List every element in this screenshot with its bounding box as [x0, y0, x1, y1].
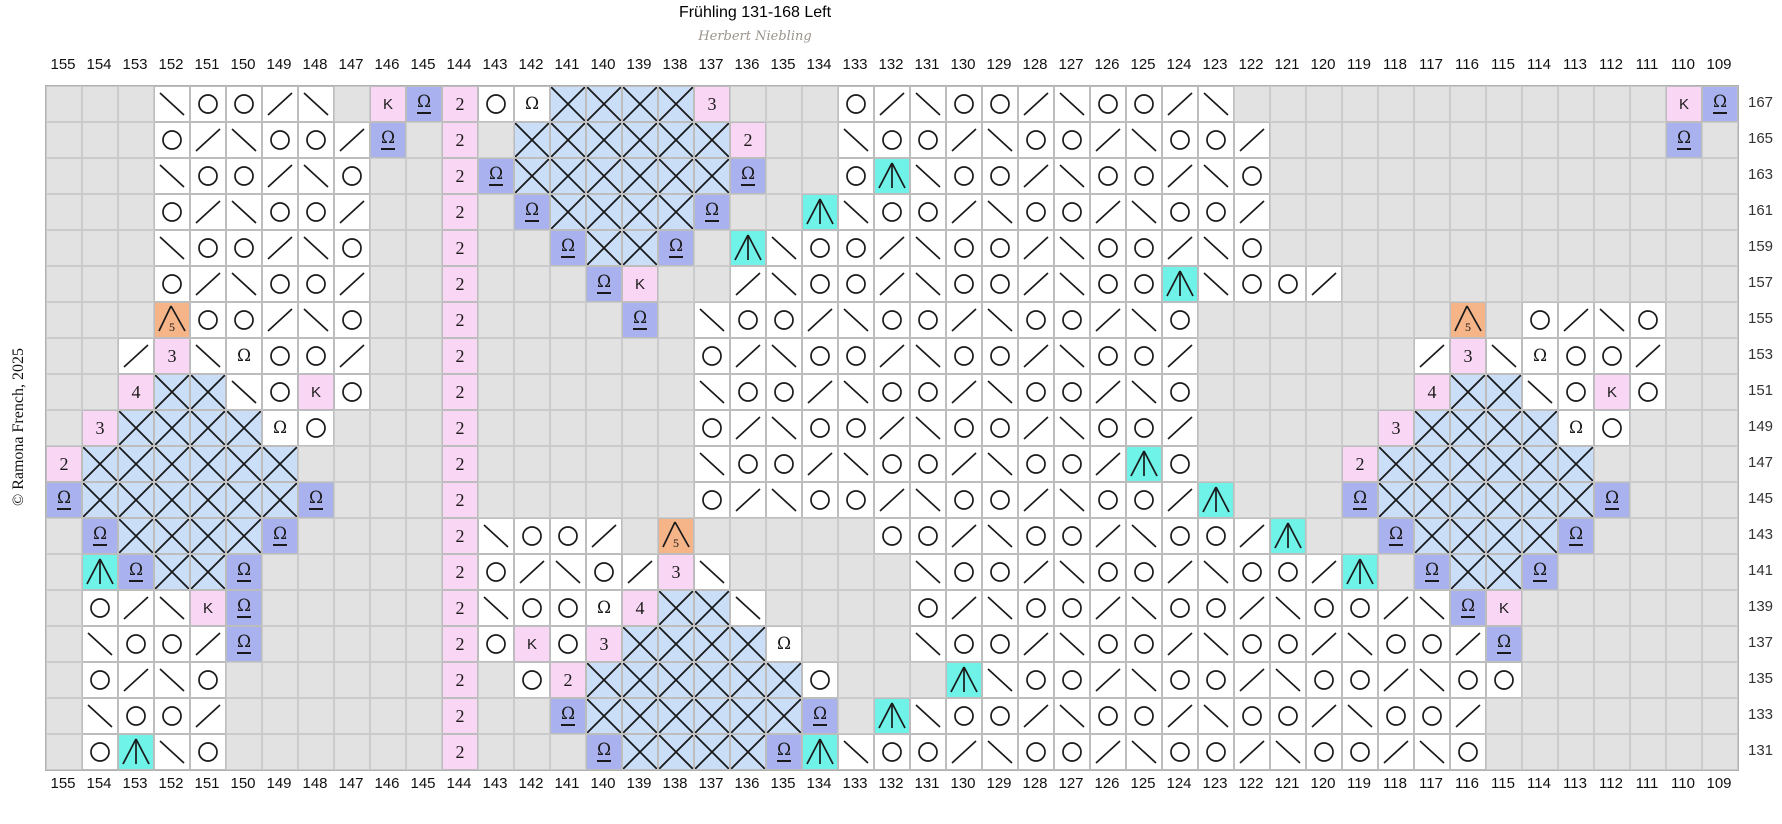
cell-r145-c149	[262, 482, 298, 518]
cell-r151-c148: K	[298, 374, 334, 410]
cell-r141-c136	[730, 554, 766, 590]
crossed-stitch-icon	[1451, 555, 1485, 589]
cell-r135-c112	[1594, 662, 1630, 698]
cell-r143-c149: Ω	[262, 518, 298, 554]
cell-r141-c116	[1450, 554, 1486, 590]
yarn-over-icon	[1091, 267, 1125, 301]
cell-r153-c144: 2	[442, 338, 478, 374]
yarn-over-icon	[155, 699, 189, 733]
right-decrease-icon	[1091, 375, 1125, 409]
cell-r151-c151	[190, 374, 226, 410]
yarn-over-icon	[1415, 627, 1449, 661]
cell-r165-c125	[1126, 122, 1162, 158]
cell-r137-c123	[1198, 626, 1234, 662]
cell-r135-c114	[1522, 662, 1558, 698]
cell-r145-c152	[154, 482, 190, 518]
cell-r153-c111	[1630, 338, 1666, 374]
yarn-over-icon	[1127, 339, 1161, 373]
cell-r147-c144: 2	[442, 446, 478, 482]
cell-r145-c132	[874, 482, 910, 518]
cell-r141-c126	[1090, 554, 1126, 590]
cell-r145-c129	[982, 482, 1018, 518]
column-label-121: 121	[1269, 52, 1305, 78]
twisted-stitch-icon: Ω	[489, 166, 503, 186]
yarn-over-icon	[1163, 447, 1197, 481]
cell-r131-c137	[694, 734, 730, 770]
yarn-over-icon	[731, 375, 765, 409]
cell-r135-c109	[1702, 662, 1738, 698]
cell-r133-c146	[370, 698, 406, 734]
cell-r157-c124	[1162, 266, 1198, 302]
cell-r163-c126	[1090, 158, 1126, 194]
twisted-stitch-icon: Ω	[1569, 526, 1583, 546]
left-decrease-icon	[1055, 555, 1089, 589]
cell-r165-c151	[190, 122, 226, 158]
cell-r139-c129	[982, 590, 1018, 626]
crossed-stitch-icon	[1415, 447, 1449, 481]
cell-r131-c131	[910, 734, 946, 770]
left-decrease-icon	[299, 159, 333, 193]
cell-r147-c111	[1630, 446, 1666, 482]
yarn-over-icon	[1163, 375, 1197, 409]
cell-r167-c146: K	[370, 86, 406, 122]
cell-r167-c124	[1162, 86, 1198, 122]
column-label-130: 130	[945, 52, 981, 78]
cell-r153-c138	[658, 338, 694, 374]
double-decrease-icon	[875, 159, 909, 193]
yarn-over-icon	[947, 555, 981, 589]
twisted-stitch-icon: Ω	[741, 166, 755, 186]
row-label-147: 147	[1745, 445, 1781, 481]
cell-r151-c152	[154, 374, 190, 410]
yarn-over-icon	[695, 339, 729, 373]
cell-r147-c121	[1270, 446, 1306, 482]
cell-r163-c138	[658, 158, 694, 194]
cell-r131-c123	[1198, 734, 1234, 770]
yarn-over-icon	[1307, 735, 1341, 769]
cell-r159-c112	[1594, 230, 1630, 266]
yarn-over-icon	[767, 303, 801, 337]
cell-r159-c132	[874, 230, 910, 266]
yarn-over-icon	[263, 123, 297, 157]
right-decrease-icon	[263, 87, 297, 121]
cell-r141-c130	[946, 554, 982, 590]
cell-r155-c117	[1414, 302, 1450, 338]
column-label-153: 153	[117, 52, 153, 78]
left-decrease-icon	[299, 231, 333, 265]
column-label-119: 119	[1341, 771, 1377, 797]
cell-r131-c126	[1090, 734, 1126, 770]
cell-r143-c151	[190, 518, 226, 554]
cell-r145-c147	[334, 482, 370, 518]
cell-r157-c135	[766, 266, 802, 302]
cell-r133-c128	[1018, 698, 1054, 734]
right-decrease-icon	[335, 195, 369, 229]
cell-r159-c133	[838, 230, 874, 266]
cell-r149-c142	[514, 410, 550, 446]
yarn-over-icon	[1307, 663, 1341, 697]
cell-r135-c146	[370, 662, 406, 698]
cell-r161-c136	[730, 194, 766, 230]
yarn-over-icon	[515, 591, 549, 625]
cell-r163-c117	[1414, 158, 1450, 194]
cell-r165-c136: 2	[730, 122, 766, 158]
left-decrease-icon	[1199, 159, 1233, 193]
right-decrease-icon	[1235, 195, 1269, 229]
left-decrease-icon	[479, 519, 513, 553]
cell-r143-c128	[1018, 518, 1054, 554]
cell-r159-c136	[730, 230, 766, 266]
cell-r143-c127	[1054, 518, 1090, 554]
cell-r161-c145	[406, 194, 442, 230]
cell-r157-c112	[1594, 266, 1630, 302]
cell-r149-c110	[1666, 410, 1702, 446]
yarn-over-icon	[1595, 411, 1629, 445]
column-label-147: 147	[333, 52, 369, 78]
k-stitch-label: K	[203, 601, 213, 616]
cell-r147-c153	[118, 446, 154, 482]
right-decrease-icon	[947, 123, 981, 157]
cell-r139-c120	[1306, 590, 1342, 626]
cell-r163-c131	[910, 158, 946, 194]
crossed-stitch-icon	[659, 627, 693, 661]
cell-r137-c152	[154, 626, 190, 662]
cell-r145-c155: Ω	[46, 482, 82, 518]
cell-r165-c113	[1558, 122, 1594, 158]
k-stitch-label: K	[311, 385, 321, 400]
cell-r139-c154	[82, 590, 118, 626]
cell-r153-c121	[1270, 338, 1306, 374]
left-decrease-icon	[551, 555, 585, 589]
cell-r131-c121	[1270, 734, 1306, 770]
cell-r137-c132	[874, 626, 910, 662]
yarn-over-icon	[947, 231, 981, 265]
left-decrease-icon	[1055, 339, 1089, 373]
cell-r143-c109	[1702, 518, 1738, 554]
crossed-stitch-icon	[227, 483, 261, 517]
cell-r167-c133	[838, 86, 874, 122]
cell-r139-c140: Ω	[586, 590, 622, 626]
cell-r155-c130	[946, 302, 982, 338]
cell-r139-c128	[1018, 590, 1054, 626]
left-decrease-icon	[299, 87, 333, 121]
yarn-over-icon	[299, 267, 333, 301]
cell-r149-c112	[1594, 410, 1630, 446]
twisted-stitch-icon: Ω	[417, 94, 431, 114]
crossed-stitch-icon	[1523, 447, 1557, 481]
twisted-stitch-icon: Ω	[597, 600, 611, 617]
cell-r139-c141	[550, 590, 586, 626]
yarn-over-icon	[803, 483, 837, 517]
column-label-138: 138	[657, 771, 693, 797]
cell-r141-c115	[1486, 554, 1522, 590]
row-label-131: 131	[1745, 733, 1781, 769]
crossed-stitch-icon	[1487, 375, 1521, 409]
cell-r151-c123	[1198, 374, 1234, 410]
cell-r141-c138: 3	[658, 554, 694, 590]
cell-r137-c138	[658, 626, 694, 662]
cell-r155-c126	[1090, 302, 1126, 338]
cell-r131-c145	[406, 734, 442, 770]
yarn-over-icon	[731, 303, 765, 337]
left-decrease-icon	[839, 195, 873, 229]
cell-r167-c120	[1306, 86, 1342, 122]
right-decrease-icon	[1163, 231, 1197, 265]
cell-r155-c138	[658, 302, 694, 338]
left-decrease-icon	[1127, 195, 1161, 229]
cell-r133-c154	[82, 698, 118, 734]
cell-r157-c129	[982, 266, 1018, 302]
crossed-stitch-icon	[1559, 447, 1593, 481]
yarn-over-icon	[1019, 519, 1053, 553]
left-decrease-icon	[155, 591, 189, 625]
cell-r131-c150	[226, 734, 262, 770]
crossed-stitch-icon	[551, 87, 585, 121]
cell-r161-c152	[154, 194, 190, 230]
cell-r139-c147	[334, 590, 370, 626]
row-label-167: 167	[1745, 85, 1781, 121]
cell-r149-c118: 3	[1378, 410, 1414, 446]
yarn-over-icon	[1199, 591, 1233, 625]
cell-r145-c153	[118, 482, 154, 518]
cell-r135-c131	[910, 662, 946, 698]
left-decrease-icon	[911, 411, 945, 445]
cell-r137-c129	[982, 626, 1018, 662]
cell-r135-c125	[1126, 662, 1162, 698]
cell-r141-c119	[1342, 554, 1378, 590]
yarn-over-icon	[1019, 663, 1053, 697]
column-label-114: 114	[1521, 771, 1557, 797]
cell-r163-c134	[802, 158, 838, 194]
double-decrease-icon	[119, 735, 153, 769]
yarn-over-icon	[119, 627, 153, 661]
yarn-over-icon	[515, 519, 549, 553]
cell-r165-c148	[298, 122, 334, 158]
cell-r163-c127	[1054, 158, 1090, 194]
crossed-stitch-icon	[1379, 483, 1413, 517]
cell-r157-c115	[1486, 266, 1522, 302]
cell-r137-c125	[1126, 626, 1162, 662]
cell-r137-c154	[82, 626, 118, 662]
cell-r147-c146	[370, 446, 406, 482]
crossed-stitch-icon	[155, 411, 189, 445]
cell-r141-c113	[1558, 554, 1594, 590]
cell-r145-c143	[478, 482, 514, 518]
cell-r159-c154	[82, 230, 118, 266]
cell-r131-c154	[82, 734, 118, 770]
cell-r159-c141: Ω	[550, 230, 586, 266]
column-label-116: 116	[1449, 52, 1485, 78]
crossed-stitch-icon	[1523, 519, 1557, 553]
twisted-stitch-icon: Ω	[1605, 490, 1619, 510]
crossed-stitch-icon	[659, 123, 693, 157]
cell-r159-c116	[1450, 230, 1486, 266]
yarn-over-icon	[1091, 627, 1125, 661]
repeat-number-label: 2	[456, 275, 465, 293]
yarn-over-icon	[1019, 195, 1053, 229]
left-decrease-icon	[1055, 267, 1089, 301]
cell-r133-c127	[1054, 698, 1090, 734]
cell-r137-c119	[1342, 626, 1378, 662]
row-label-135: 135	[1745, 661, 1781, 697]
cell-r133-c151	[190, 698, 226, 734]
cell-r137-c118	[1378, 626, 1414, 662]
cell-r137-c124	[1162, 626, 1198, 662]
column-label-132: 132	[873, 771, 909, 797]
double-decrease-icon	[1271, 519, 1305, 553]
cell-r135-c148	[298, 662, 334, 698]
cell-r145-c131	[910, 482, 946, 518]
yarn-over-icon	[263, 195, 297, 229]
cell-r139-c145	[406, 590, 442, 626]
cell-r165-c152	[154, 122, 190, 158]
crossed-stitch-icon	[695, 735, 729, 769]
cell-r155-c113	[1558, 302, 1594, 338]
yarn-over-icon	[1055, 375, 1089, 409]
column-label-143: 143	[477, 52, 513, 78]
cell-r141-c122	[1234, 554, 1270, 590]
cell-r155-c137	[694, 302, 730, 338]
crossed-stitch-icon	[659, 663, 693, 697]
twisted-stitch-icon: Ω	[1389, 526, 1403, 546]
yarn-over-icon	[1235, 231, 1269, 265]
cell-r133-c140	[586, 698, 622, 734]
column-label-123: 123	[1197, 52, 1233, 78]
crossed-stitch-icon	[623, 735, 657, 769]
yarn-over-icon	[1235, 555, 1269, 589]
cell-r165-c145	[406, 122, 442, 158]
yarn-over-icon	[119, 699, 153, 733]
cell-r143-c154: Ω	[82, 518, 118, 554]
cell-r153-c127	[1054, 338, 1090, 374]
column-label-117: 117	[1413, 771, 1449, 797]
cell-r147-c109	[1702, 446, 1738, 482]
twisted-stitch-icon: Ω	[669, 238, 683, 258]
cell-r157-c121	[1270, 266, 1306, 302]
cell-r137-c130	[946, 626, 982, 662]
yarn-over-icon	[1199, 663, 1233, 697]
cell-r143-c110	[1666, 518, 1702, 554]
cell-r159-c135	[766, 230, 802, 266]
cell-r141-c143	[478, 554, 514, 590]
crossed-stitch-icon	[1451, 519, 1485, 553]
yarn-over-icon	[983, 87, 1017, 121]
cell-r167-c130	[946, 86, 982, 122]
cell-r135-c154	[82, 662, 118, 698]
cell-r163-c140	[586, 158, 622, 194]
cell-r161-c155	[46, 194, 82, 230]
yarn-over-icon	[839, 231, 873, 265]
cell-r137-c115: Ω	[1486, 626, 1522, 662]
cell-r135-c139	[622, 662, 658, 698]
cell-r141-c141	[550, 554, 586, 590]
crossed-stitch-icon	[191, 519, 225, 553]
cell-r141-c153: Ω	[118, 554, 154, 590]
yarn-over-icon	[83, 663, 117, 697]
cell-r149-c135	[766, 410, 802, 446]
k-stitch-label: K	[635, 277, 645, 292]
yarn-over-icon	[1091, 483, 1125, 517]
cell-r157-c144: 2	[442, 266, 478, 302]
cell-r167-c155	[46, 86, 82, 122]
cell-r135-c116	[1450, 662, 1486, 698]
crossed-stitch-icon	[1415, 411, 1449, 445]
left-decrease-icon	[1127, 663, 1161, 697]
crossed-stitch-icon	[767, 663, 801, 697]
cell-r161-c141	[550, 194, 586, 230]
column-label-149: 149	[261, 771, 297, 797]
cell-r157-c131	[910, 266, 946, 302]
crossed-stitch-icon	[1415, 483, 1449, 517]
crossed-stitch-icon	[587, 159, 621, 193]
cell-r157-c145	[406, 266, 442, 302]
repeat-number-label: 3	[96, 419, 105, 437]
cell-r159-c149	[262, 230, 298, 266]
cell-r155-c119	[1342, 302, 1378, 338]
cell-r131-c128	[1018, 734, 1054, 770]
cell-r139-c143	[478, 590, 514, 626]
yarn-over-icon	[875, 447, 909, 481]
cell-r163-c139	[622, 158, 658, 194]
column-label-150: 150	[225, 771, 261, 797]
column-label-135: 135	[765, 771, 801, 797]
cell-r159-c131	[910, 230, 946, 266]
crossed-stitch-icon	[695, 159, 729, 193]
cell-r147-c118	[1378, 446, 1414, 482]
right-decrease-icon	[803, 375, 837, 409]
cell-r147-c155: 2	[46, 446, 82, 482]
left-decrease-icon	[911, 267, 945, 301]
yarn-over-icon	[155, 123, 189, 157]
left-decrease-icon	[155, 735, 189, 769]
cell-r143-c155	[46, 518, 82, 554]
cell-r143-c114	[1522, 518, 1558, 554]
cell-r137-c145	[406, 626, 442, 662]
cell-r167-c113	[1558, 86, 1594, 122]
cell-r165-c150	[226, 122, 262, 158]
double-decrease-icon	[731, 231, 765, 265]
cell-r135-c124	[1162, 662, 1198, 698]
yarn-over-icon	[1127, 411, 1161, 445]
cell-r147-c113	[1558, 446, 1594, 482]
cell-r133-c122	[1234, 698, 1270, 734]
cell-r157-c126	[1090, 266, 1126, 302]
cell-r153-c132	[874, 338, 910, 374]
cell-r157-c122	[1234, 266, 1270, 302]
right-decrease-icon	[1091, 123, 1125, 157]
yarn-over-icon	[767, 447, 801, 481]
cell-r163-c112	[1594, 158, 1630, 194]
right-decrease-icon	[1163, 699, 1197, 733]
cell-r151-c132	[874, 374, 910, 410]
cell-r135-c123	[1198, 662, 1234, 698]
cell-r159-c144: 2	[442, 230, 478, 266]
cell-r143-c131	[910, 518, 946, 554]
cell-r159-c151	[190, 230, 226, 266]
cell-r135-c136	[730, 662, 766, 698]
repeat-number-label: 2	[744, 131, 753, 149]
cell-r141-c150: Ω	[226, 554, 262, 590]
cell-r139-c125	[1126, 590, 1162, 626]
cell-r137-c141	[550, 626, 586, 662]
row-label-133: 133	[1745, 697, 1781, 733]
cell-r155-c144: 2	[442, 302, 478, 338]
cell-r155-c136	[730, 302, 766, 338]
cell-r151-c116	[1450, 374, 1486, 410]
cell-r137-c116	[1450, 626, 1486, 662]
crossed-stitch-icon	[1487, 411, 1521, 445]
twisted-stitch-icon: Ω	[1569, 420, 1583, 437]
